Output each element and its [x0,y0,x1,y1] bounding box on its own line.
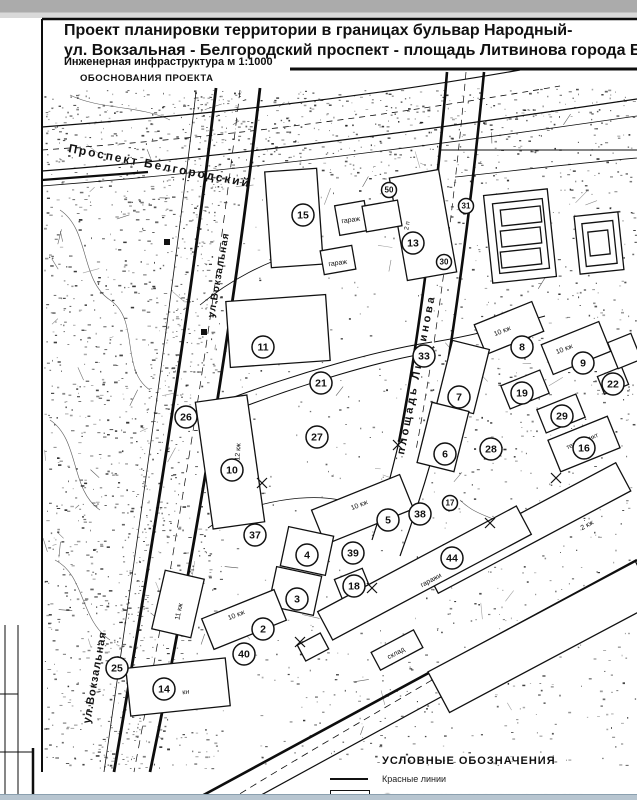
map-marker: 27 [306,426,328,448]
marker-number: 14 [158,684,170,696]
marker-number: 33 [418,351,430,363]
marker-number: 30 [440,258,449,267]
legend-title: УСЛОВНЫЕ ОБОЗНАЧЕНИЯ [382,755,630,767]
map-marker: 30 [437,255,452,270]
marker-number: 18 [348,581,360,593]
marker-number: 4 [304,550,310,562]
marker-number: 10 [226,465,238,477]
map-marker: 6 [434,443,456,465]
map-marker: 37 [244,524,266,546]
marker-number: 6 [442,449,448,461]
marker-number: 16 [578,443,590,455]
map-marker: 31 [459,199,474,214]
street-label: ул.Вокзальная [81,630,109,724]
building-label: 12 кж [234,443,242,461]
marker-number: 26 [180,412,192,424]
marker-number: 38 [414,509,426,521]
marker-number: 50 [385,186,394,195]
map-marker: 21 [310,372,332,394]
scanned-plan-page: Проспект Белгородскийул.Вокзальнаяплощад… [0,0,637,800]
plan-stage-label: ОБОСНОВАНИЯ ПРОЕКТА [80,73,214,84]
map-marker: 10 [221,459,243,481]
marker-number: 11 [257,342,268,354]
plan-scale-note: Инженерная инфраструктура м 1:1000 [64,56,273,68]
map-marker: 22 [602,373,624,395]
marker-number: 44 [446,553,458,565]
marker-number: 19 [516,388,528,400]
map-marker: 16 [573,437,595,459]
map-marker: 3 [286,588,308,610]
marker-number: 28 [485,444,497,456]
map-marker: 28 [480,438,502,460]
marker-number: 22 [607,379,619,391]
marker-number: 39 [347,548,359,560]
marker-number: 13 [407,238,419,250]
map-marker: 15 [292,204,314,226]
marker-number: 29 [556,411,568,423]
red-line-symbol [330,778,368,780]
map-marker: 8 [511,336,533,358]
marker-number: 2 [260,624,266,636]
map-marker: 18 [343,575,365,597]
marker-number: 3 [294,594,300,606]
map-marker: 29 [551,405,573,427]
map-marker: 38 [409,503,431,525]
plan-title-line1: Проект планировки территории в границах … [64,22,572,40]
map-marker: 39 [342,542,364,564]
map-marker: 13 [402,232,424,254]
map-marker: 4 [296,544,318,566]
marker-number: 37 [249,530,261,542]
map-marker: 9 [572,352,594,374]
marker-number: 27 [311,432,323,444]
marker-number: 31 [462,202,471,211]
marker-number: 5 [385,515,391,527]
map-marker: 26 [175,406,197,428]
window-bottom-bar [0,794,637,800]
map-marker: 44 [441,547,463,569]
marker-number: 21 [315,378,327,390]
marker-number: 25 [111,663,123,675]
marker-number: 7 [456,392,462,404]
marker-number: 40 [238,649,250,661]
legend-item: Красные линии [330,772,630,785]
street-label: Проспект Белгородский [67,141,252,190]
building-label: кн [182,689,190,697]
marker-number: 9 [580,358,586,370]
map-marker: 7 [448,386,470,408]
map-marker: 50 [382,183,397,198]
map-marker: 19 [511,382,533,404]
map-marker: 33 [413,345,435,367]
map-marker: 2 [252,618,274,640]
map-marker: 14 [153,678,175,700]
map-marker: 17 [443,496,458,511]
map-marker: 40 [233,643,255,665]
map-marker: 25 [106,657,128,679]
building-label: 2 кж [580,519,596,532]
map-canvas: Проспект Белгородскийул.Вокзальнаяплощад… [0,0,637,800]
marker-number: 17 [446,499,455,508]
map-marker: 5 [377,509,399,531]
marker-number: 15 [297,210,309,222]
marker-number: 8 [519,342,525,354]
legend-item-label: Красные линии [382,774,446,784]
map-marker: 11 [252,336,274,358]
